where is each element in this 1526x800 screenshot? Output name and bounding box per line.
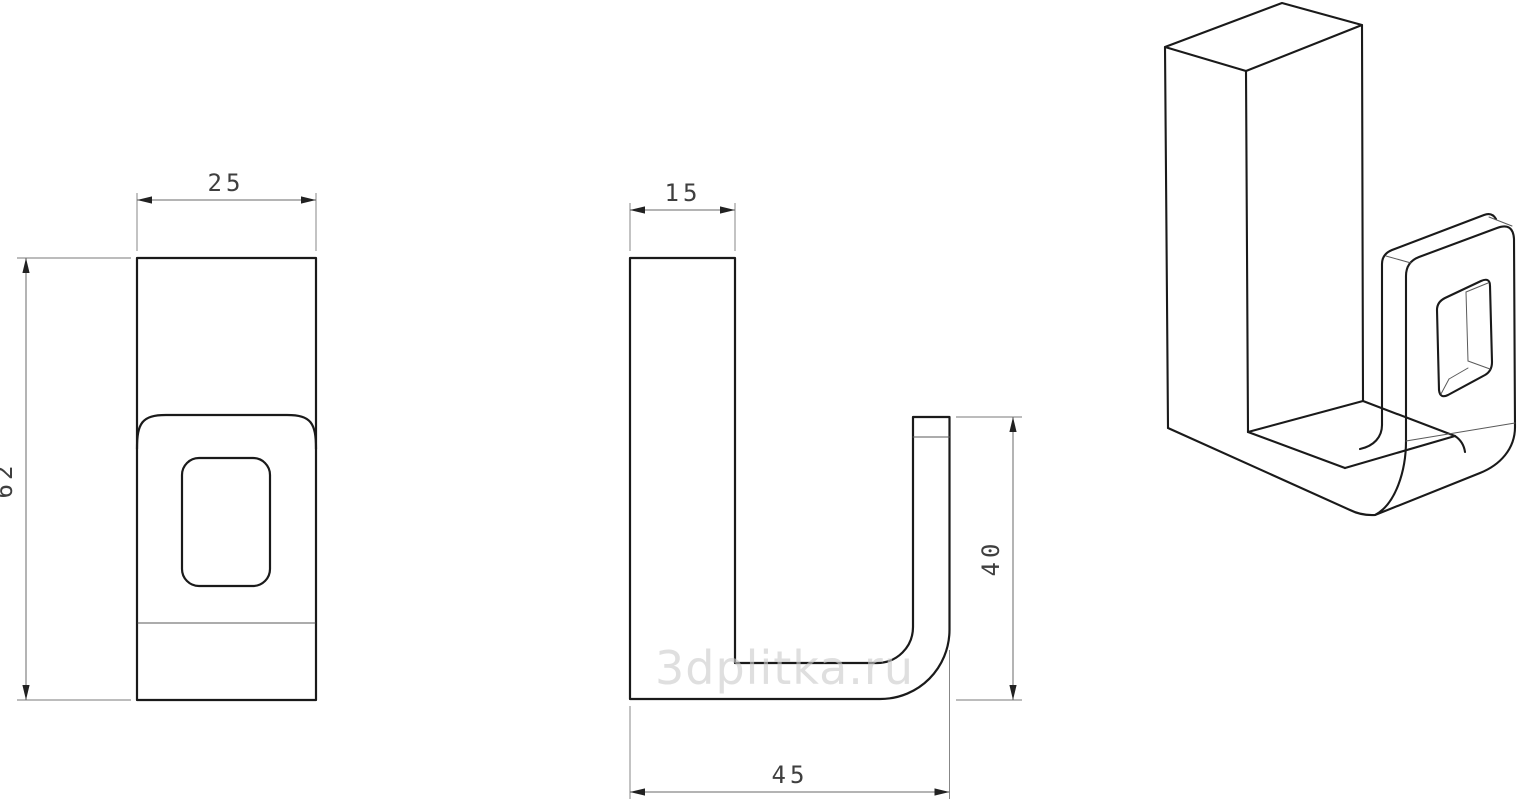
drawing-canvas: 25 62 15 — [0, 0, 1526, 800]
iso-plate-hole — [1437, 280, 1492, 396]
arrowhead-right — [301, 196, 316, 203]
dimension-text-front-height: 62 — [0, 462, 18, 499]
dimension-text-front-width: 25 — [208, 169, 245, 197]
iso-corner-seam-top-left — [1386, 256, 1411, 263]
watermark: 3dplitka.ru — [655, 641, 875, 695]
side-profile-outline — [630, 258, 950, 699]
iso-bottom-silhouette — [1168, 427, 1515, 515]
iso-prism-top-face — [1165, 3, 1362, 71]
dimension-side-hook-height: 40 — [956, 417, 1022, 700]
front-hook-rounded-top — [137, 415, 316, 449]
iso-base-seam — [1248, 401, 1363, 432]
arrowhead-left — [630, 206, 645, 213]
arrowhead-right — [720, 206, 735, 213]
iso-floor-left-edge — [1248, 432, 1345, 468]
iso-inner-bend-curve — [1360, 425, 1382, 449]
arrowhead-bottom — [1009, 685, 1016, 700]
isometric-view — [1165, 3, 1515, 515]
front-hook-hole — [182, 458, 270, 586]
iso-bend-tangent-line — [1406, 423, 1515, 441]
front-view: 25 62 — [0, 169, 316, 700]
dimension-text-side-depth: 45 — [772, 761, 809, 789]
arrowhead-top — [22, 258, 29, 273]
dimension-text-side-hook-height: 40 — [977, 540, 1005, 577]
dimension-front-width: 25 — [137, 169, 316, 251]
arrowhead-left — [137, 196, 152, 203]
dimension-side-thickness: 15 — [630, 179, 735, 251]
arrowhead-bottom — [22, 685, 29, 700]
iso-floor-right-edge — [1363, 401, 1465, 452]
iso-floor-far-edge — [1345, 436, 1455, 468]
arrowhead-top — [1009, 417, 1016, 432]
arrowhead-right — [935, 788, 950, 795]
dimension-text-side-thickness: 15 — [665, 179, 702, 207]
arrowhead-left — [630, 788, 645, 795]
side-view: 15 40 45 — [630, 179, 1022, 799]
iso-corner-seam-top-right — [1489, 217, 1512, 226]
dimension-front-height: 62 — [0, 258, 131, 700]
iso-prism-right-edge — [1362, 25, 1363, 401]
iso-prism-front-edge — [1246, 71, 1248, 432]
iso-prism-left-edge — [1165, 47, 1168, 428]
